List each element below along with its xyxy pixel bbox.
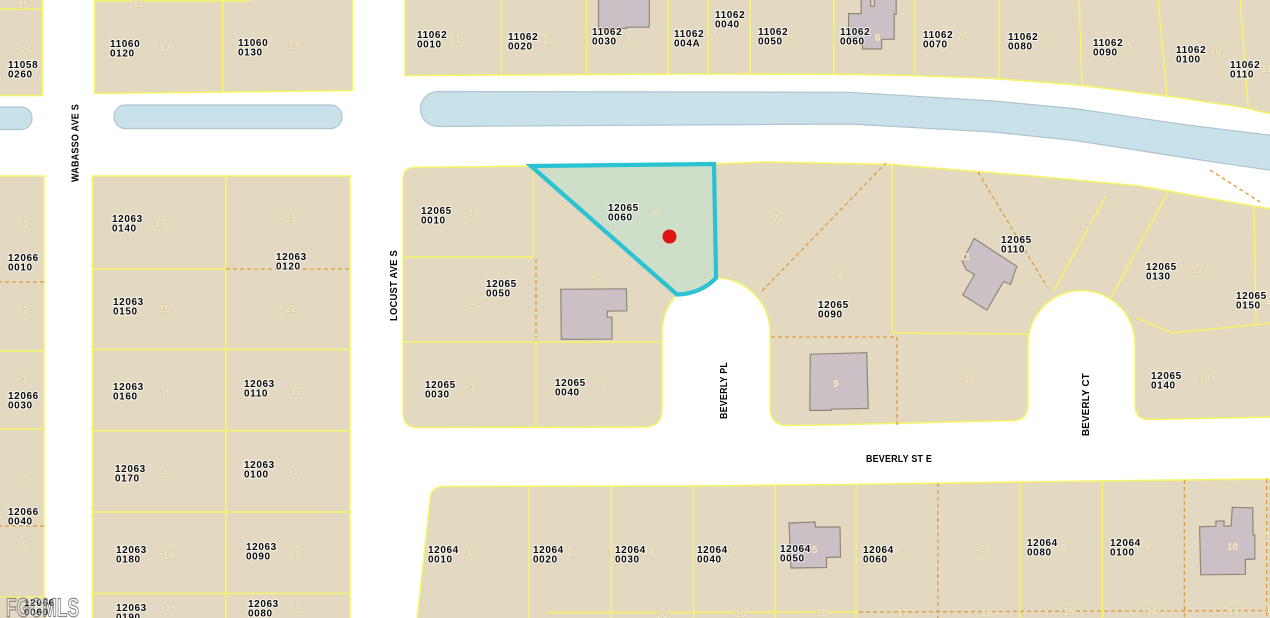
svg-text:0260: 0260 xyxy=(8,70,33,81)
svg-text:16: 16 xyxy=(981,608,993,618)
svg-text:13: 13 xyxy=(288,41,300,52)
svg-text:15: 15 xyxy=(159,304,171,315)
svg-text:0090: 0090 xyxy=(1093,48,1118,59)
svg-text:0060: 0060 xyxy=(608,213,633,224)
svg-text:0130: 0130 xyxy=(1146,272,1171,283)
svg-text:17: 17 xyxy=(897,608,909,618)
svg-text:0110: 0110 xyxy=(1230,70,1254,81)
svg-text:0010: 0010 xyxy=(8,263,33,274)
svg-text:1: 1 xyxy=(23,219,29,230)
svg-text:0010: 0010 xyxy=(417,40,442,51)
svg-text:14: 14 xyxy=(155,218,167,229)
svg-text:13: 13 xyxy=(1228,607,1240,618)
svg-text:0120: 0120 xyxy=(276,262,301,273)
svg-text:0030: 0030 xyxy=(425,390,450,401)
svg-text:12: 12 xyxy=(285,304,297,315)
svg-text:11: 11 xyxy=(1261,64,1270,75)
svg-text:WABASSO AVE S: WABASSO AVE S xyxy=(71,104,82,182)
svg-text:3: 3 xyxy=(625,34,631,45)
svg-text:0090: 0090 xyxy=(246,552,271,563)
svg-text:20: 20 xyxy=(657,610,669,618)
svg-text:13: 13 xyxy=(1191,265,1203,276)
svg-text:18: 18 xyxy=(816,608,828,618)
svg-text:2: 2 xyxy=(470,297,476,308)
svg-text:16: 16 xyxy=(161,388,173,399)
svg-text:6: 6 xyxy=(875,33,881,44)
svg-text:8: 8 xyxy=(1061,543,1067,554)
svg-text:5: 5 xyxy=(594,274,600,285)
svg-text:0100: 0100 xyxy=(244,470,269,481)
svg-text:0140: 0140 xyxy=(1151,381,1176,392)
svg-text:BEVERLY CT: BEVERLY CT xyxy=(1081,373,1092,436)
svg-text:0140: 0140 xyxy=(112,224,137,235)
svg-text:0040: 0040 xyxy=(555,388,580,399)
svg-text:BEVERLY PL: BEVERLY PL xyxy=(719,362,730,419)
svg-text:8: 8 xyxy=(838,271,844,282)
svg-text:0100: 0100 xyxy=(1110,548,1135,559)
svg-text:0150: 0150 xyxy=(113,307,138,318)
svg-text:11: 11 xyxy=(1265,530,1270,541)
svg-text:0060: 0060 xyxy=(840,37,865,48)
svg-text:0040: 0040 xyxy=(697,555,722,566)
svg-text:0070: 0070 xyxy=(923,40,948,51)
svg-text:BEVERLY ST E: BEVERLY ST E xyxy=(866,454,932,465)
svg-text:0010: 0010 xyxy=(421,216,446,227)
svg-text:1: 1 xyxy=(468,208,474,219)
svg-text:10: 10 xyxy=(1227,542,1239,553)
svg-text:11: 11 xyxy=(960,252,971,263)
svg-text:7: 7 xyxy=(979,544,985,555)
svg-text:9: 9 xyxy=(1127,41,1133,52)
svg-text:10: 10 xyxy=(1210,46,1222,57)
svg-text:13: 13 xyxy=(285,214,297,225)
svg-text:7: 7 xyxy=(957,32,963,43)
svg-text:0030: 0030 xyxy=(8,401,33,412)
svg-text:0170: 0170 xyxy=(115,474,140,485)
svg-text:0040: 0040 xyxy=(8,517,33,528)
svg-text:004A: 004A xyxy=(674,39,700,50)
svg-text:0190: 0190 xyxy=(116,613,141,618)
svg-text:4: 4 xyxy=(730,546,736,557)
svg-text:0090: 0090 xyxy=(818,310,843,321)
svg-text:0180: 0180 xyxy=(116,555,141,566)
svg-text:8: 8 xyxy=(1041,36,1047,47)
svg-text:12: 12 xyxy=(1080,221,1092,232)
svg-text:10: 10 xyxy=(964,374,976,385)
svg-text:11: 11 xyxy=(133,0,144,10)
svg-text:12: 12 xyxy=(159,43,171,54)
svg-text:5: 5 xyxy=(790,34,796,45)
svg-text:25: 25 xyxy=(18,0,30,11)
svg-text:0160: 0160 xyxy=(113,392,138,403)
svg-text:0120: 0120 xyxy=(110,49,135,60)
svg-text:14: 14 xyxy=(1146,607,1158,618)
svg-text:2: 2 xyxy=(543,35,549,46)
svg-text:7: 7 xyxy=(773,214,779,225)
svg-text:17: 17 xyxy=(163,469,175,480)
svg-text:1: 1 xyxy=(467,547,473,558)
svg-text:9: 9 xyxy=(833,379,839,390)
svg-text:0080: 0080 xyxy=(1008,42,1033,53)
svg-text:3: 3 xyxy=(648,546,654,557)
svg-text:LOCUST AVE S: LOCUST AVE S xyxy=(389,250,400,321)
svg-text:4: 4 xyxy=(22,473,28,484)
svg-text:0100: 0100 xyxy=(1176,55,1201,66)
svg-text:0030: 0030 xyxy=(592,37,617,48)
svg-text:3: 3 xyxy=(470,383,476,394)
svg-text:0050: 0050 xyxy=(758,37,783,48)
svg-text:18: 18 xyxy=(163,551,175,562)
svg-text:FGCMLS: FGCMLS xyxy=(6,593,79,618)
svg-text:0050: 0050 xyxy=(486,289,511,300)
svg-text:11: 11 xyxy=(291,386,302,397)
svg-text:19: 19 xyxy=(735,609,747,618)
svg-text:3: 3 xyxy=(22,375,28,386)
svg-text:0110: 0110 xyxy=(244,389,268,400)
svg-text:4: 4 xyxy=(600,382,606,393)
svg-text:0010: 0010 xyxy=(428,555,453,566)
svg-text:8: 8 xyxy=(295,601,301,612)
svg-text:1: 1 xyxy=(455,34,461,45)
svg-text:4: 4 xyxy=(708,33,714,44)
svg-text:0020: 0020 xyxy=(508,42,533,53)
svg-text:5: 5 xyxy=(812,545,818,556)
svg-text:0080: 0080 xyxy=(1027,548,1052,559)
svg-text:0040: 0040 xyxy=(715,20,740,31)
svg-text:2: 2 xyxy=(567,547,573,558)
svg-text:9: 9 xyxy=(1144,542,1150,553)
svg-text:0130: 0130 xyxy=(238,48,263,59)
svg-text:0030: 0030 xyxy=(615,555,640,566)
svg-text:10: 10 xyxy=(293,467,305,478)
svg-text:19: 19 xyxy=(165,603,177,614)
svg-text:14: 14 xyxy=(1199,373,1211,384)
svg-text:0020: 0020 xyxy=(533,555,558,566)
svg-text:0050: 0050 xyxy=(780,554,805,565)
svg-text:0110: 0110 xyxy=(1001,245,1025,256)
svg-text:12: 12 xyxy=(1266,604,1270,615)
svg-text:15: 15 xyxy=(1063,607,1075,618)
svg-text:6: 6 xyxy=(896,545,902,556)
svg-text:0080: 0080 xyxy=(248,609,273,618)
svg-text:5: 5 xyxy=(22,540,28,551)
svg-text:0150: 0150 xyxy=(1236,301,1261,312)
svg-text:0060: 0060 xyxy=(863,555,888,566)
svg-text:6: 6 xyxy=(653,209,659,220)
svg-text:2: 2 xyxy=(23,305,29,316)
svg-text:26: 26 xyxy=(21,45,33,56)
svg-text:9: 9 xyxy=(295,549,301,560)
